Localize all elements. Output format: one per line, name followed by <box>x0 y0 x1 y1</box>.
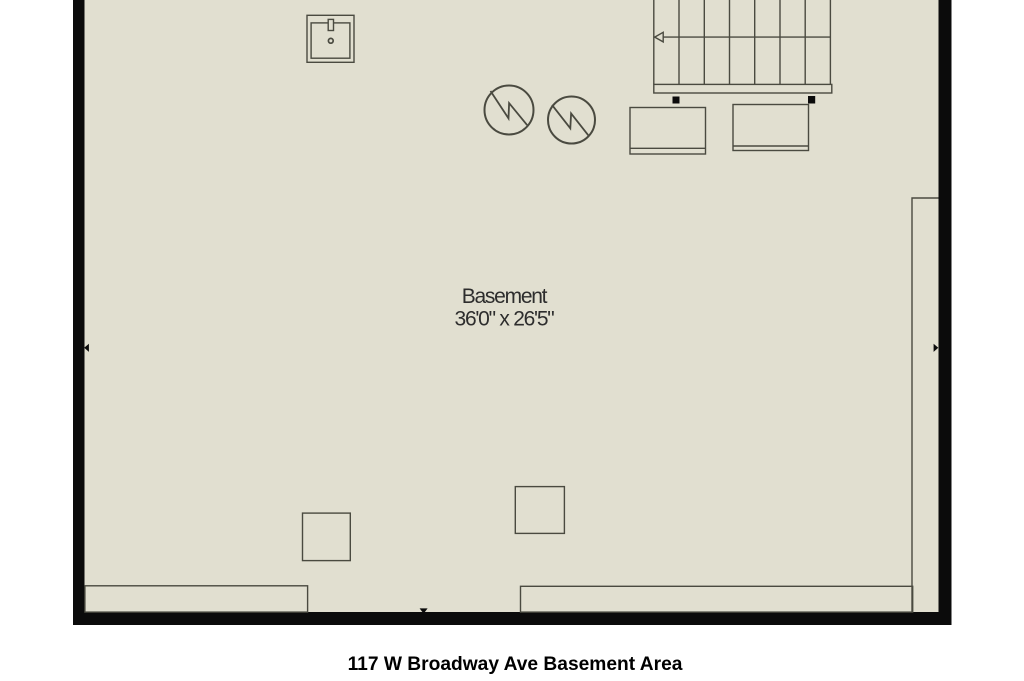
svg-text:Basement: Basement <box>462 285 548 308</box>
svg-text:117 W Broadway Ave Basement Ar: 117 W Broadway Ave Basement Area <box>348 654 683 675</box>
svg-text:36'0" x 26'5": 36'0" x 26'5" <box>455 308 555 331</box>
